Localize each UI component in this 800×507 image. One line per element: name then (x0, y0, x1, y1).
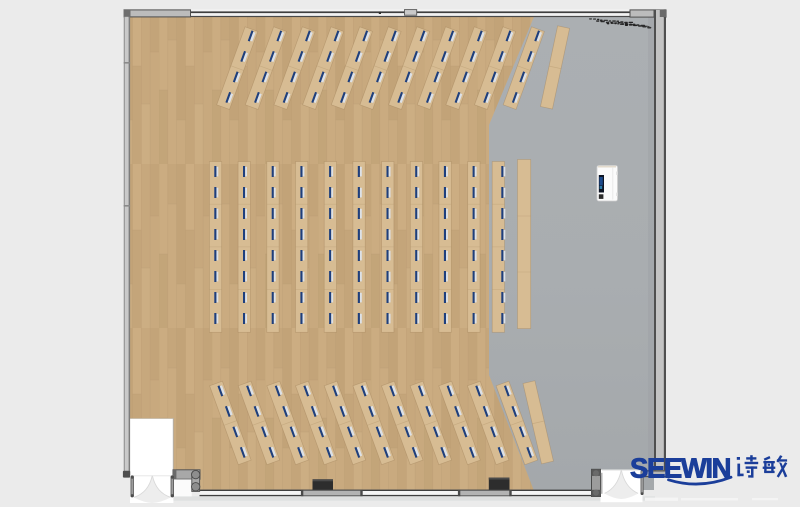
svg-text:SEEWIN: SEEWIN (630, 453, 730, 484)
